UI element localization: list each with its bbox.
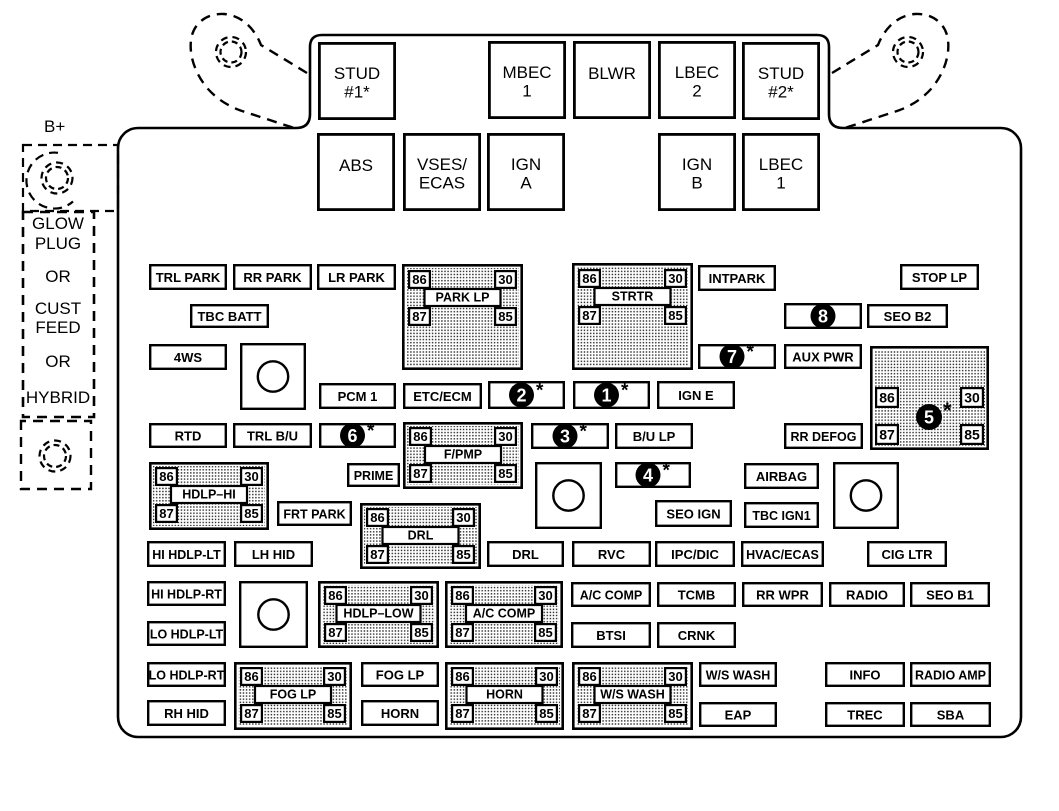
svg-text:30: 30 [668,271,682,286]
svg-text:86: 86 [244,669,258,684]
svg-text:30: 30 [327,669,341,684]
svg-text:IGN: IGN [682,155,712,174]
svg-text:EAP: EAP [725,708,752,723]
svg-text:B+: B+ [44,117,65,136]
svg-text:AUX PWR: AUX PWR [792,350,854,365]
svg-text:30: 30 [538,588,552,603]
svg-text:85: 85 [498,309,512,324]
svg-text:*: * [367,421,375,442]
svg-text:*: * [580,422,588,443]
svg-text:DRL: DRL [512,547,539,562]
svg-text:ABS: ABS [339,156,373,175]
svg-text:86: 86 [455,669,469,684]
svg-text:RR DEFOG: RR DEFOG [791,430,857,444]
svg-text:RVC: RVC [598,547,626,562]
svg-text:30: 30 [244,469,258,484]
svg-text:PARK LP: PARK LP [436,291,490,305]
svg-text:TRL PARK: TRL PARK [156,270,221,285]
svg-text:87: 87 [159,506,173,521]
svg-text:86: 86 [412,272,426,287]
svg-text:A: A [520,174,532,193]
svg-text:85: 85 [964,427,980,443]
svg-text:85: 85 [244,506,258,521]
svg-text:87: 87 [413,466,427,481]
svg-text:LH HID: LH HID [252,547,295,562]
svg-text:AIRBAG: AIRBAG [756,469,807,484]
svg-text:IGN: IGN [511,155,541,174]
svg-text:B/U LP: B/U LP [633,429,676,444]
svg-text:4WS: 4WS [174,350,203,365]
svg-text:HDLP–LOW: HDLP–LOW [343,607,413,621]
svg-text:A/C COMP: A/C COMP [473,607,536,621]
svg-text:DRL: DRL [408,529,434,543]
svg-text:ECAS: ECAS [419,174,465,193]
svg-text:3: 3 [560,426,570,446]
svg-text:HYBRID: HYBRID [26,388,90,407]
svg-text:87: 87 [244,706,258,721]
svg-text:STRTR: STRTR [612,290,654,304]
svg-text:30: 30 [498,272,512,287]
svg-text:85: 85 [539,706,553,721]
svg-text:RTD: RTD [175,429,202,444]
svg-text:RR WPR: RR WPR [756,588,809,603]
svg-text:STUD: STUD [758,64,804,83]
svg-text:85: 85 [668,308,682,323]
svg-text:4: 4 [643,465,653,485]
svg-text:HDLP–HI: HDLP–HI [182,488,235,502]
svg-text:CIG LTR: CIG LTR [881,547,933,562]
svg-text:RH HID: RH HID [164,706,209,721]
svg-text:86: 86 [582,271,596,286]
svg-text:STOP LP: STOP LP [912,270,967,285]
svg-text:IGN E: IGN E [678,388,714,403]
svg-text:30: 30 [539,669,553,684]
svg-text:LR PARK: LR PARK [328,270,385,285]
svg-text:LO HDLP-LT: LO HDLP-LT [150,628,224,642]
svg-text:*: * [747,342,755,363]
svg-text:5: 5 [924,407,934,427]
svg-text:CRNK: CRNK [678,628,716,643]
svg-text:TBC IGN1: TBC IGN1 [752,509,810,523]
svg-text:85: 85 [498,466,512,481]
svg-text:87: 87 [412,309,426,324]
svg-text:LO HDLP-RT: LO HDLP-RT [149,669,225,683]
svg-text:GLOW: GLOW [32,214,84,233]
svg-text:B: B [691,174,702,193]
svg-text:TRL B/U: TRL B/U [247,429,298,444]
svg-text:OR: OR [45,352,71,371]
svg-text:87: 87 [879,427,895,443]
svg-text:FOG LP: FOG LP [376,668,425,683]
svg-text:30: 30 [456,510,470,525]
svg-text:FEED: FEED [35,318,80,337]
svg-text:85: 85 [414,625,428,640]
svg-text:HI HDLP-RT: HI HDLP-RT [151,588,222,602]
svg-text:87: 87 [455,625,469,640]
svg-text:INFO: INFO [849,668,880,683]
svg-text:1: 1 [601,385,611,405]
svg-text:TBC BATT: TBC BATT [197,309,261,324]
svg-text:CUST: CUST [35,299,81,318]
svg-text:TREC: TREC [847,708,883,723]
svg-text:PRIME: PRIME [354,469,394,483]
svg-text:87: 87 [455,706,469,721]
svg-text:30: 30 [498,429,512,444]
svg-text:RADIO: RADIO [846,588,888,603]
svg-text:RR PARK: RR PARK [243,270,302,285]
svg-text:30: 30 [964,390,980,406]
svg-text:*: * [621,381,629,402]
svg-text:86: 86 [582,669,596,684]
svg-text:F/PMP: F/PMP [444,448,482,462]
svg-text:VSES/: VSES/ [417,155,467,174]
svg-text:87: 87 [328,625,342,640]
svg-text:HORN: HORN [486,688,523,702]
svg-text:HI HDLP-LT: HI HDLP-LT [152,548,221,562]
svg-text:1: 1 [522,82,531,101]
svg-text:85: 85 [668,706,682,721]
svg-text:IPC/DIC: IPC/DIC [671,547,719,562]
svg-text:*: * [536,381,544,402]
svg-text:2: 2 [692,82,701,101]
svg-text:FOG LP: FOG LP [270,688,317,702]
svg-text:HORN: HORN [381,706,419,721]
svg-text:87: 87 [370,547,384,562]
svg-text:MBEC: MBEC [502,63,551,82]
svg-text:86: 86 [879,390,895,406]
svg-text:30: 30 [414,588,428,603]
svg-text:86: 86 [413,429,427,444]
svg-text:86: 86 [159,469,173,484]
svg-text:86: 86 [455,588,469,603]
svg-text:PCM 1: PCM 1 [338,389,378,404]
svg-text:#2*: #2* [768,83,794,102]
svg-text:STUD: STUD [334,64,380,83]
svg-text:1: 1 [776,174,785,193]
svg-text:ETC/ECM: ETC/ECM [413,389,472,404]
svg-text:30: 30 [668,669,682,684]
svg-text:2: 2 [516,385,526,405]
svg-text:RADIO AMP: RADIO AMP [915,669,986,683]
svg-text:85: 85 [327,706,341,721]
svg-text:LBEC: LBEC [759,155,803,174]
svg-text:LBEC: LBEC [675,63,719,82]
svg-text:85: 85 [456,547,470,562]
svg-text:HVAC/ECAS: HVAC/ECAS [746,548,819,562]
svg-text:8: 8 [818,306,828,326]
svg-text:86: 86 [328,588,342,603]
svg-text:BLWR: BLWR [588,64,636,83]
svg-text:#1*: #1* [344,83,370,102]
svg-text:SEO B2: SEO B2 [884,309,932,324]
svg-text:7: 7 [727,347,737,367]
svg-text:BTSI: BTSI [596,628,626,643]
svg-text:87: 87 [582,308,596,323]
svg-text:SEO B1: SEO B1 [926,588,974,603]
svg-text:*: * [663,461,671,482]
svg-text:SBA: SBA [937,708,965,723]
svg-text:W/S WASH: W/S WASH [600,688,665,702]
svg-text:6: 6 [347,426,357,446]
svg-text:FRT PARK: FRT PARK [283,508,345,522]
svg-text:INTPARK: INTPARK [709,271,766,286]
svg-text:A/C COMP: A/C COMP [580,589,643,603]
svg-text:OR: OR [45,267,71,286]
svg-text:PLUG: PLUG [35,234,81,253]
svg-text:TCMB: TCMB [678,588,716,603]
svg-text:85: 85 [538,625,552,640]
svg-text:SEO IGN: SEO IGN [666,507,720,522]
svg-text:W/S WASH: W/S WASH [706,669,771,683]
svg-text:87: 87 [582,706,596,721]
svg-text:*: * [943,398,952,423]
svg-text:86: 86 [370,510,384,525]
